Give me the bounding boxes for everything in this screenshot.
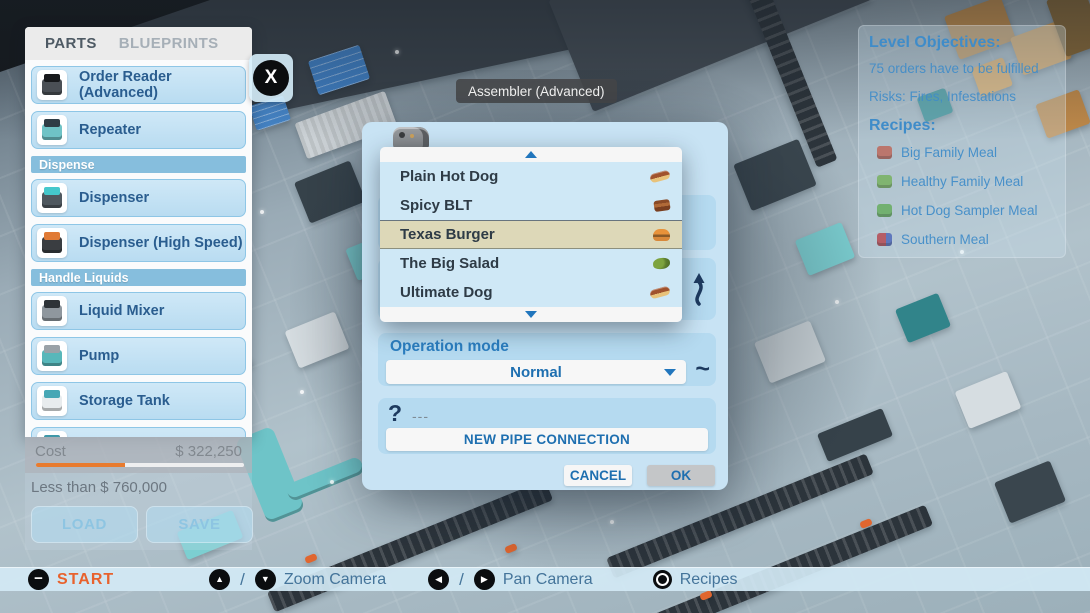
- dialog-section-pipes: ? --- NEW PIPE CONNECTION: [378, 398, 716, 454]
- part-label: Liquid Mixer: [79, 303, 164, 319]
- chevron-down-icon: [664, 369, 676, 376]
- meal-icon: [877, 175, 892, 188]
- cancel-button[interactable]: CANCEL: [564, 465, 632, 486]
- dpad-right-icon: ▶: [474, 569, 495, 590]
- part-label: Dispenser (High Speed): [79, 235, 243, 251]
- cost-limit-text: Less than $ 760,000: [25, 473, 252, 496]
- hotdog-icon: [649, 286, 671, 300]
- sandwich-icon: [653, 199, 670, 212]
- help-value: ---: [412, 408, 429, 424]
- recipe-label: Big Family Meal: [901, 145, 997, 160]
- part-item-repeater[interactable]: Repeater: [31, 111, 246, 149]
- recipe-row: Healthy Family Meal: [877, 174, 1055, 189]
- up-arrow-icon: [525, 151, 537, 158]
- part-label: Pump: [79, 348, 119, 364]
- tab-parts[interactable]: PARTS: [45, 35, 97, 52]
- recipe-label: Southern Meal: [901, 232, 989, 247]
- part-item-pump[interactable]: Pump: [31, 337, 246, 375]
- recipes-label: Recipes: [680, 571, 738, 589]
- recipe-dropdown-list: Plain Hot Dog Spicy BLT Texas Burger The…: [380, 147, 682, 322]
- dispenser-high-speed-icon: [37, 228, 67, 258]
- tilde-icon: ~: [695, 355, 710, 384]
- recipe-label: Healthy Family Meal: [901, 174, 1023, 189]
- start-label: START: [57, 571, 114, 589]
- part-item-liquid-mixer[interactable]: Liquid Mixer: [31, 292, 246, 330]
- part-item-storage-tank[interactable]: Storage Tank: [31, 382, 246, 420]
- cost-progress-fill: [36, 463, 125, 467]
- dropdown-item-label: Plain Hot Dog: [400, 168, 650, 185]
- help-icon: ?: [388, 400, 402, 427]
- circle-button-icon: [653, 570, 672, 589]
- recipe-row: Hot Dog Sampler Meal: [877, 203, 1055, 218]
- objectives-orders: 75 orders have to be fulfilled: [869, 61, 1055, 76]
- recipe-row: Big Family Meal: [877, 145, 1055, 160]
- dropdown-item-label: The Big Salad: [400, 255, 653, 272]
- slash-separator: /: [240, 570, 245, 590]
- storage-tank-icon: [37, 386, 67, 416]
- save-button[interactable]: SAVE: [146, 506, 253, 543]
- order-reader-icon: [37, 70, 67, 100]
- tab-blueprints[interactable]: BLUEPRINTS: [119, 35, 219, 52]
- scroll-down-button[interactable]: [380, 307, 682, 322]
- parts-list: Order Reader (Advanced) Repeater Dispens…: [25, 60, 252, 437]
- assembler-icon: [393, 127, 429, 149]
- load-button[interactable]: LOAD: [31, 506, 138, 543]
- dropdown-item-label: Spicy BLT: [400, 197, 654, 214]
- dropdown-item-label: Ultimate Dog: [400, 284, 650, 301]
- objectives-risks: Risks: Fires, Infestations: [869, 89, 1055, 104]
- meal-icon: [877, 146, 892, 159]
- part-item-order-reader-advanced[interactable]: Order Reader (Advanced): [31, 66, 246, 104]
- part-label: Storage Tank: [79, 393, 170, 409]
- ok-button[interactable]: OK: [647, 465, 715, 486]
- tooltip-assembler: Assembler (Advanced): [456, 79, 617, 103]
- section-header-dispense: Dispense: [31, 156, 246, 173]
- dropdown-item-label: Texas Burger: [400, 226, 653, 243]
- section-header-handle-liquids: Handle Liquids: [31, 269, 246, 286]
- cost-progress-bar: [36, 463, 244, 467]
- part-label: Order Reader (Advanced): [79, 69, 245, 101]
- parts-panel: PARTS BLUEPRINTS Order Reader (Advanced)…: [25, 27, 252, 437]
- tooltip-text: Assembler (Advanced): [468, 84, 605, 99]
- burger-icon: [653, 229, 670, 241]
- new-pipe-connection-button[interactable]: NEW PIPE CONNECTION: [386, 428, 708, 451]
- part-item-storage-tank-large[interactable]: Storage Tank (Large): [31, 427, 246, 437]
- dialog-section-operation-mode: Operation mode Normal ~: [378, 333, 716, 386]
- curvy-arrow-icon: [690, 272, 708, 306]
- dropdown-item-the-big-salad[interactable]: The Big Salad: [380, 249, 682, 278]
- part-label: Repeater: [79, 122, 141, 138]
- repeater-icon: [37, 115, 67, 145]
- hotdog-icon: [649, 170, 671, 184]
- pan-camera-hint[interactable]: ◀ / ▶ Pan Camera: [428, 569, 593, 590]
- pump-icon: [37, 341, 67, 371]
- recipes-hint[interactable]: Recipes: [653, 570, 738, 589]
- operation-mode-value: Normal: [510, 364, 562, 381]
- game-screen: Assembler (Advanced) Level Objectives: 7…: [0, 0, 1090, 613]
- cost-panel: Cost $ 322,250: [25, 437, 252, 473]
- part-label: Dispenser: [79, 190, 149, 206]
- recipes-title: Recipes:: [869, 117, 1055, 135]
- parts-tabbar: PARTS BLUEPRINTS: [25, 27, 252, 60]
- dialog-actions: CANCEL OK: [564, 465, 715, 486]
- recipe-label: Hot Dog Sampler Meal: [901, 203, 1038, 218]
- cost-value: $ 322,250: [175, 443, 242, 460]
- part-item-dispenser-high-speed[interactable]: Dispenser (High Speed): [31, 224, 246, 262]
- pan-camera-label: Pan Camera: [503, 571, 593, 589]
- dpad-down-icon: ▼: [255, 569, 276, 590]
- scroll-up-button[interactable]: [380, 147, 682, 162]
- close-icon: X: [253, 60, 289, 96]
- salad-icon: [653, 257, 671, 269]
- operation-mode-select[interactable]: Normal: [386, 360, 686, 384]
- dropdown-item-spicy-blt[interactable]: Spicy BLT: [380, 191, 682, 220]
- dpad-left-icon: ◀: [428, 569, 449, 590]
- dpad-up-icon: ▲: [209, 569, 230, 590]
- close-button[interactable]: X: [249, 54, 293, 102]
- part-item-dispenser[interactable]: Dispenser: [31, 179, 246, 217]
- dropdown-item-texas-burger[interactable]: Texas Burger: [380, 220, 682, 249]
- slash-separator: /: [459, 570, 464, 590]
- dropdown-item-plain-hot-dog[interactable]: Plain Hot Dog: [380, 162, 682, 191]
- controller-hint-bar: − START ▲ / ▼ Zoom Camera ◀ / ▶ Pan Came…: [0, 567, 1090, 591]
- load-save-buttons: LOAD SAVE: [31, 506, 253, 543]
- level-objectives-panel: Level Objectives: 75 orders have to be f…: [858, 25, 1066, 258]
- meal-icon: [877, 204, 892, 217]
- minus-button-icon: −: [28, 569, 49, 590]
- dispenser-icon: [37, 183, 67, 213]
- operation-mode-label: Operation mode: [390, 338, 509, 356]
- cost-label: Cost: [35, 443, 66, 460]
- meal-icon: [877, 233, 892, 246]
- zoom-camera-hint[interactable]: ▲ / ▼ Zoom Camera: [209, 569, 386, 590]
- start-hint[interactable]: − START: [28, 569, 114, 590]
- down-arrow-icon: [525, 311, 537, 318]
- recipe-row: Southern Meal: [877, 232, 1055, 247]
- zoom-camera-label: Zoom Camera: [284, 571, 386, 589]
- liquid-mixer-icon: [37, 296, 67, 326]
- dropdown-item-ultimate-dog[interactable]: Ultimate Dog: [380, 278, 682, 307]
- objectives-title: Level Objectives:: [869, 34, 1055, 52]
